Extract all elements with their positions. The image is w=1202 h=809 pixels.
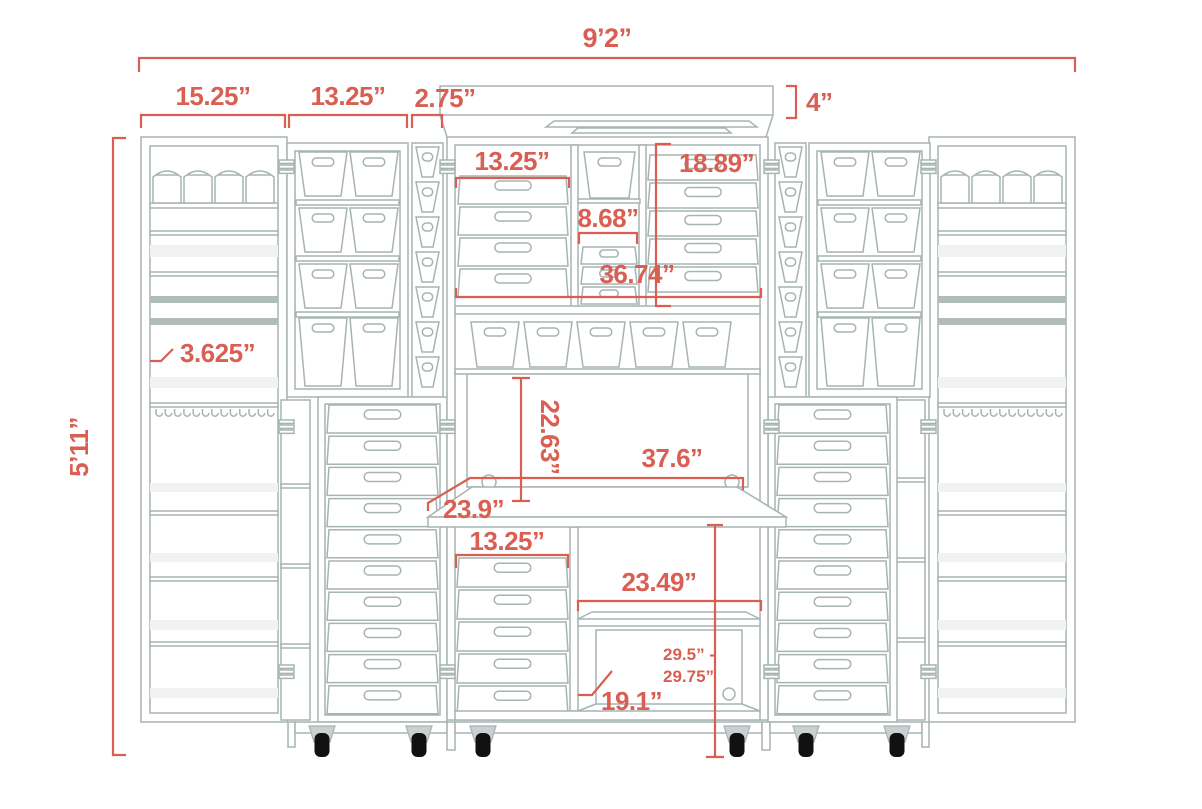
- bin-handle: [785, 153, 795, 161]
- shelf: [150, 231, 278, 235]
- dim-desk-height-label-1: 29.5” -: [663, 645, 715, 664]
- dim-narrow-column-bracket: [412, 115, 442, 128]
- bin-handle: [785, 328, 795, 336]
- drawer-handle: [364, 441, 401, 450]
- hinge-connector: [279, 160, 294, 163]
- section-divider: [455, 306, 760, 314]
- bin-handle: [834, 270, 856, 278]
- dim-desk-height-label-2: 29.75”: [663, 667, 714, 686]
- shelf: [150, 403, 278, 407]
- bin-handle: [537, 328, 559, 336]
- shelf: [296, 312, 399, 317]
- shelf-highlight: [938, 483, 1066, 492]
- shelf: [938, 511, 1066, 515]
- left-wing-tower: [141, 137, 287, 722]
- hinge-connector: [921, 430, 936, 433]
- hinge-connector: [440, 665, 455, 668]
- shelf-highlight: [150, 245, 278, 257]
- bin-handle: [422, 188, 432, 196]
- shelf: [150, 272, 278, 276]
- dim-crown-bracket: [786, 86, 796, 118]
- dim-overall-width: 9’2”: [139, 23, 1075, 72]
- bin-handle: [363, 158, 385, 166]
- right-drawer-stack: [768, 397, 897, 722]
- drawer-handle: [814, 660, 851, 669]
- dim-narrow-column-width: 2.75”: [412, 83, 476, 128]
- left-bin-column: [287, 143, 408, 397]
- dim-desk-back-label: 22.63”: [535, 399, 565, 474]
- cubby-shelf-front: [578, 619, 760, 626]
- hinge-connector: [764, 170, 779, 173]
- drawer-handle: [685, 272, 721, 281]
- shelf: [818, 256, 921, 261]
- bin-handle: [422, 258, 432, 266]
- hinge-connector: [279, 430, 294, 433]
- hinge-connector: [764, 425, 779, 428]
- hinge-connector: [921, 675, 936, 678]
- hinge-connector: [921, 425, 936, 428]
- dim-overall-height-bracket: [113, 138, 126, 755]
- strip-divider: [895, 638, 925, 642]
- shelf-highlight: [150, 483, 278, 492]
- dim-upper-column-label: 18.89”: [679, 148, 754, 178]
- bin-handle: [422, 328, 432, 336]
- dim-upper-drawer-label: 13.25”: [474, 146, 549, 176]
- drawer-handle: [495, 212, 531, 221]
- drawer-handle: [814, 441, 851, 450]
- bin-handle: [590, 328, 612, 336]
- drawer-handle: [364, 691, 401, 700]
- shelf-highlight: [938, 620, 1066, 630]
- dim-overall-width-bracket: [139, 58, 1075, 72]
- bin-handle: [785, 258, 795, 266]
- jar: [972, 171, 1000, 203]
- crown-flare: [766, 115, 773, 137]
- shelf: [296, 200, 399, 205]
- dim-left-tower-width: 15.25”: [141, 81, 285, 128]
- dim-lower-drawer-label: 13.25”: [469, 526, 544, 556]
- drawer-handle: [814, 535, 851, 544]
- dim-shelf-lip-label: 3.625”: [180, 338, 255, 368]
- hinge-connector: [440, 425, 455, 428]
- jar: [215, 171, 243, 203]
- drawer-handle: [495, 274, 531, 283]
- dim-left-tower-label: 15.25”: [175, 81, 250, 111]
- right-wing-tower: [929, 137, 1075, 722]
- hinge-connector: [764, 160, 779, 163]
- right-narrow-bin-column: [775, 143, 806, 397]
- shelf: [938, 577, 1066, 581]
- shelf-highlight: [150, 377, 278, 388]
- strip-divider: [281, 564, 310, 568]
- bin-handle: [885, 270, 907, 278]
- drawer-handle: [364, 535, 401, 544]
- shelf: [938, 272, 1066, 276]
- shelf: [938, 642, 1066, 646]
- shelf-highlight: [150, 553, 278, 562]
- bin-handle: [834, 214, 856, 222]
- hinge-connector: [440, 160, 455, 163]
- hinge-connector: [440, 165, 455, 168]
- hinge-connector: [921, 160, 936, 163]
- drawer-handle: [364, 660, 401, 669]
- hinge-connector: [440, 420, 455, 423]
- bin-handle: [484, 328, 506, 336]
- bin-handle: [422, 293, 432, 301]
- dim-left-bin-column-width: 13.25”: [289, 81, 407, 128]
- bin-handle: [885, 158, 907, 166]
- bin-handle: [363, 270, 385, 278]
- bin-handle: [422, 153, 432, 161]
- drawer-handle: [494, 627, 531, 636]
- shelf-thick: [938, 296, 1066, 303]
- right-bin-column: [809, 143, 930, 397]
- crown-box: [440, 86, 773, 115]
- bin-handle: [598, 158, 621, 166]
- hinge-connector: [921, 670, 936, 673]
- hinge-connector: [440, 430, 455, 433]
- caster-wheel: [890, 733, 905, 757]
- drawer-handle: [364, 410, 401, 419]
- dim-crown-height: 4”: [786, 86, 832, 118]
- dim-desk-depth-label: 23.9”: [443, 494, 504, 524]
- shelf: [296, 256, 399, 261]
- drawer-handle: [495, 181, 531, 190]
- bin-handle: [363, 214, 385, 222]
- shelf: [150, 642, 278, 646]
- hinge-connector: [921, 420, 936, 423]
- knob: [723, 688, 735, 700]
- shelf-thick: [150, 318, 278, 325]
- drawer-handle: [814, 597, 851, 606]
- drawer-handle: [814, 504, 851, 513]
- left-narrow-bin-column: [412, 143, 443, 397]
- drawer-handle: [814, 472, 851, 481]
- shelf: [818, 200, 921, 205]
- hinge-connector: [764, 420, 779, 423]
- dim-overall-width-label: 9’2”: [582, 23, 631, 53]
- crown-topper: [440, 86, 773, 137]
- caster-wheel: [476, 733, 491, 757]
- bin-handle: [312, 270, 334, 278]
- bin-handle: [312, 158, 334, 166]
- drawer-handle: [494, 659, 531, 668]
- dim-left-bin-column-bracket: [289, 115, 407, 128]
- shelf: [938, 231, 1066, 235]
- bin-handle: [785, 188, 795, 196]
- hinge-connector: [279, 425, 294, 428]
- shelf-highlight: [938, 245, 1066, 257]
- hinge-connector: [764, 670, 779, 673]
- drawer-handle: [364, 472, 401, 481]
- hinge-connector: [764, 430, 779, 433]
- dim-desk-width-label: 37.6”: [641, 443, 702, 473]
- strip-divider: [895, 478, 925, 482]
- shelf-highlight: [938, 688, 1066, 698]
- hinge-connector: [921, 665, 936, 668]
- hinge-connector: [764, 665, 779, 668]
- strip-divider: [281, 484, 310, 488]
- hinge-connector: [279, 170, 294, 173]
- bin-handle: [834, 158, 856, 166]
- drawer-handle: [814, 691, 851, 700]
- hinge-connector: [440, 675, 455, 678]
- dim-center-cubby-label: 8.68”: [577, 203, 638, 233]
- hinge-connector: [279, 165, 294, 168]
- drawer-handle: [600, 250, 618, 257]
- hinge-connector: [440, 670, 455, 673]
- hinge-connector: [279, 665, 294, 668]
- dim-left-tower-bracket: [141, 115, 285, 128]
- drawer-handle: [685, 216, 721, 225]
- shelf-thick: [938, 318, 1066, 325]
- bin-handle: [643, 328, 665, 336]
- bin-handle: [885, 324, 907, 332]
- caster-wheel: [799, 733, 814, 757]
- caster-wheel: [315, 733, 330, 757]
- dim-narrow-column-label: 2.75”: [414, 83, 475, 113]
- jar: [941, 171, 969, 203]
- light-bar: [572, 128, 731, 133]
- dim-upper-section-label: 36.74”: [599, 259, 674, 289]
- left-drawer-stack: [318, 397, 447, 722]
- caster-bases: [288, 722, 929, 757]
- hinge-connector: [279, 675, 294, 678]
- base-foot: [447, 722, 455, 750]
- hinge-connector: [921, 170, 936, 173]
- jar: [1034, 171, 1062, 203]
- drawer-handle: [814, 566, 851, 575]
- shelf-highlight: [150, 620, 278, 630]
- base-foot: [922, 722, 929, 747]
- shelf-thick: [150, 296, 278, 303]
- hinge-connector: [764, 675, 779, 678]
- shelf-highlight: [150, 688, 278, 698]
- dim-lower-shelf-label: 19.1”: [601, 686, 662, 716]
- bin-handle: [785, 223, 795, 231]
- hinge-connector: [921, 165, 936, 168]
- bin-handle: [785, 363, 795, 371]
- dim-crown-label: 4”: [806, 87, 832, 117]
- drawer-handle: [494, 691, 531, 700]
- dim-lower-cubby-label: 23.49”: [621, 567, 696, 597]
- drawer-handle: [685, 244, 721, 253]
- drawer-handle: [814, 628, 851, 637]
- cabinet-dimension-diagram: 9’2” 15.25” 13.25” 2.75” 4” 5’11” 3.625”: [0, 0, 1202, 809]
- jar: [1003, 171, 1031, 203]
- drawer-handle: [495, 243, 531, 252]
- bin-handle: [834, 324, 856, 332]
- lower-divider: [570, 527, 578, 711]
- bin-handle: [696, 328, 718, 336]
- shelf-highlight: [938, 553, 1066, 562]
- dim-overall-height: 5’11”: [64, 138, 126, 755]
- dim-left-bin-column-label: 13.25”: [310, 81, 385, 111]
- drawer-handle: [364, 597, 401, 606]
- bin-handle: [422, 363, 432, 371]
- desk-back-panel: [467, 374, 748, 487]
- drawer-handle: [494, 563, 531, 572]
- bin-handle: [312, 214, 334, 222]
- shelf: [150, 577, 278, 581]
- caster-wheel: [412, 733, 427, 757]
- hinge-connector: [440, 170, 455, 173]
- dim-overall-height-label: 5’11”: [64, 417, 94, 477]
- strip-divider: [895, 558, 925, 562]
- shelf-highlight: [938, 377, 1066, 388]
- light-bar: [546, 121, 757, 127]
- bin-handle: [422, 223, 432, 231]
- jar: [153, 171, 181, 203]
- shelf: [150, 511, 278, 515]
- dim-desk-depth: 23.9”: [443, 494, 504, 524]
- bin-handle: [785, 293, 795, 301]
- bin-handle: [885, 214, 907, 222]
- drawer-handle: [364, 566, 401, 575]
- shelf: [938, 403, 1066, 407]
- caster-wheel: [730, 733, 745, 757]
- shelf: [818, 312, 921, 317]
- base-foot: [288, 722, 295, 747]
- hinge-connector: [279, 420, 294, 423]
- drawer-handle: [685, 188, 721, 197]
- hinge-connector: [279, 670, 294, 673]
- bin-handle: [312, 324, 334, 332]
- drawer-handle: [364, 628, 401, 637]
- strip-divider: [281, 644, 310, 648]
- drawer-handle: [814, 410, 851, 419]
- base-foot: [762, 722, 770, 750]
- drawer-handle: [364, 504, 401, 513]
- bin-handle: [363, 324, 385, 332]
- drawer-handle: [494, 595, 531, 604]
- hinge-connector: [764, 165, 779, 168]
- craft-cabinet-drawing: 9’2” 15.25” 13.25” 2.75” 4” 5’11” 3.625”: [0, 0, 1202, 809]
- jar: [246, 171, 274, 203]
- jar: [184, 171, 212, 203]
